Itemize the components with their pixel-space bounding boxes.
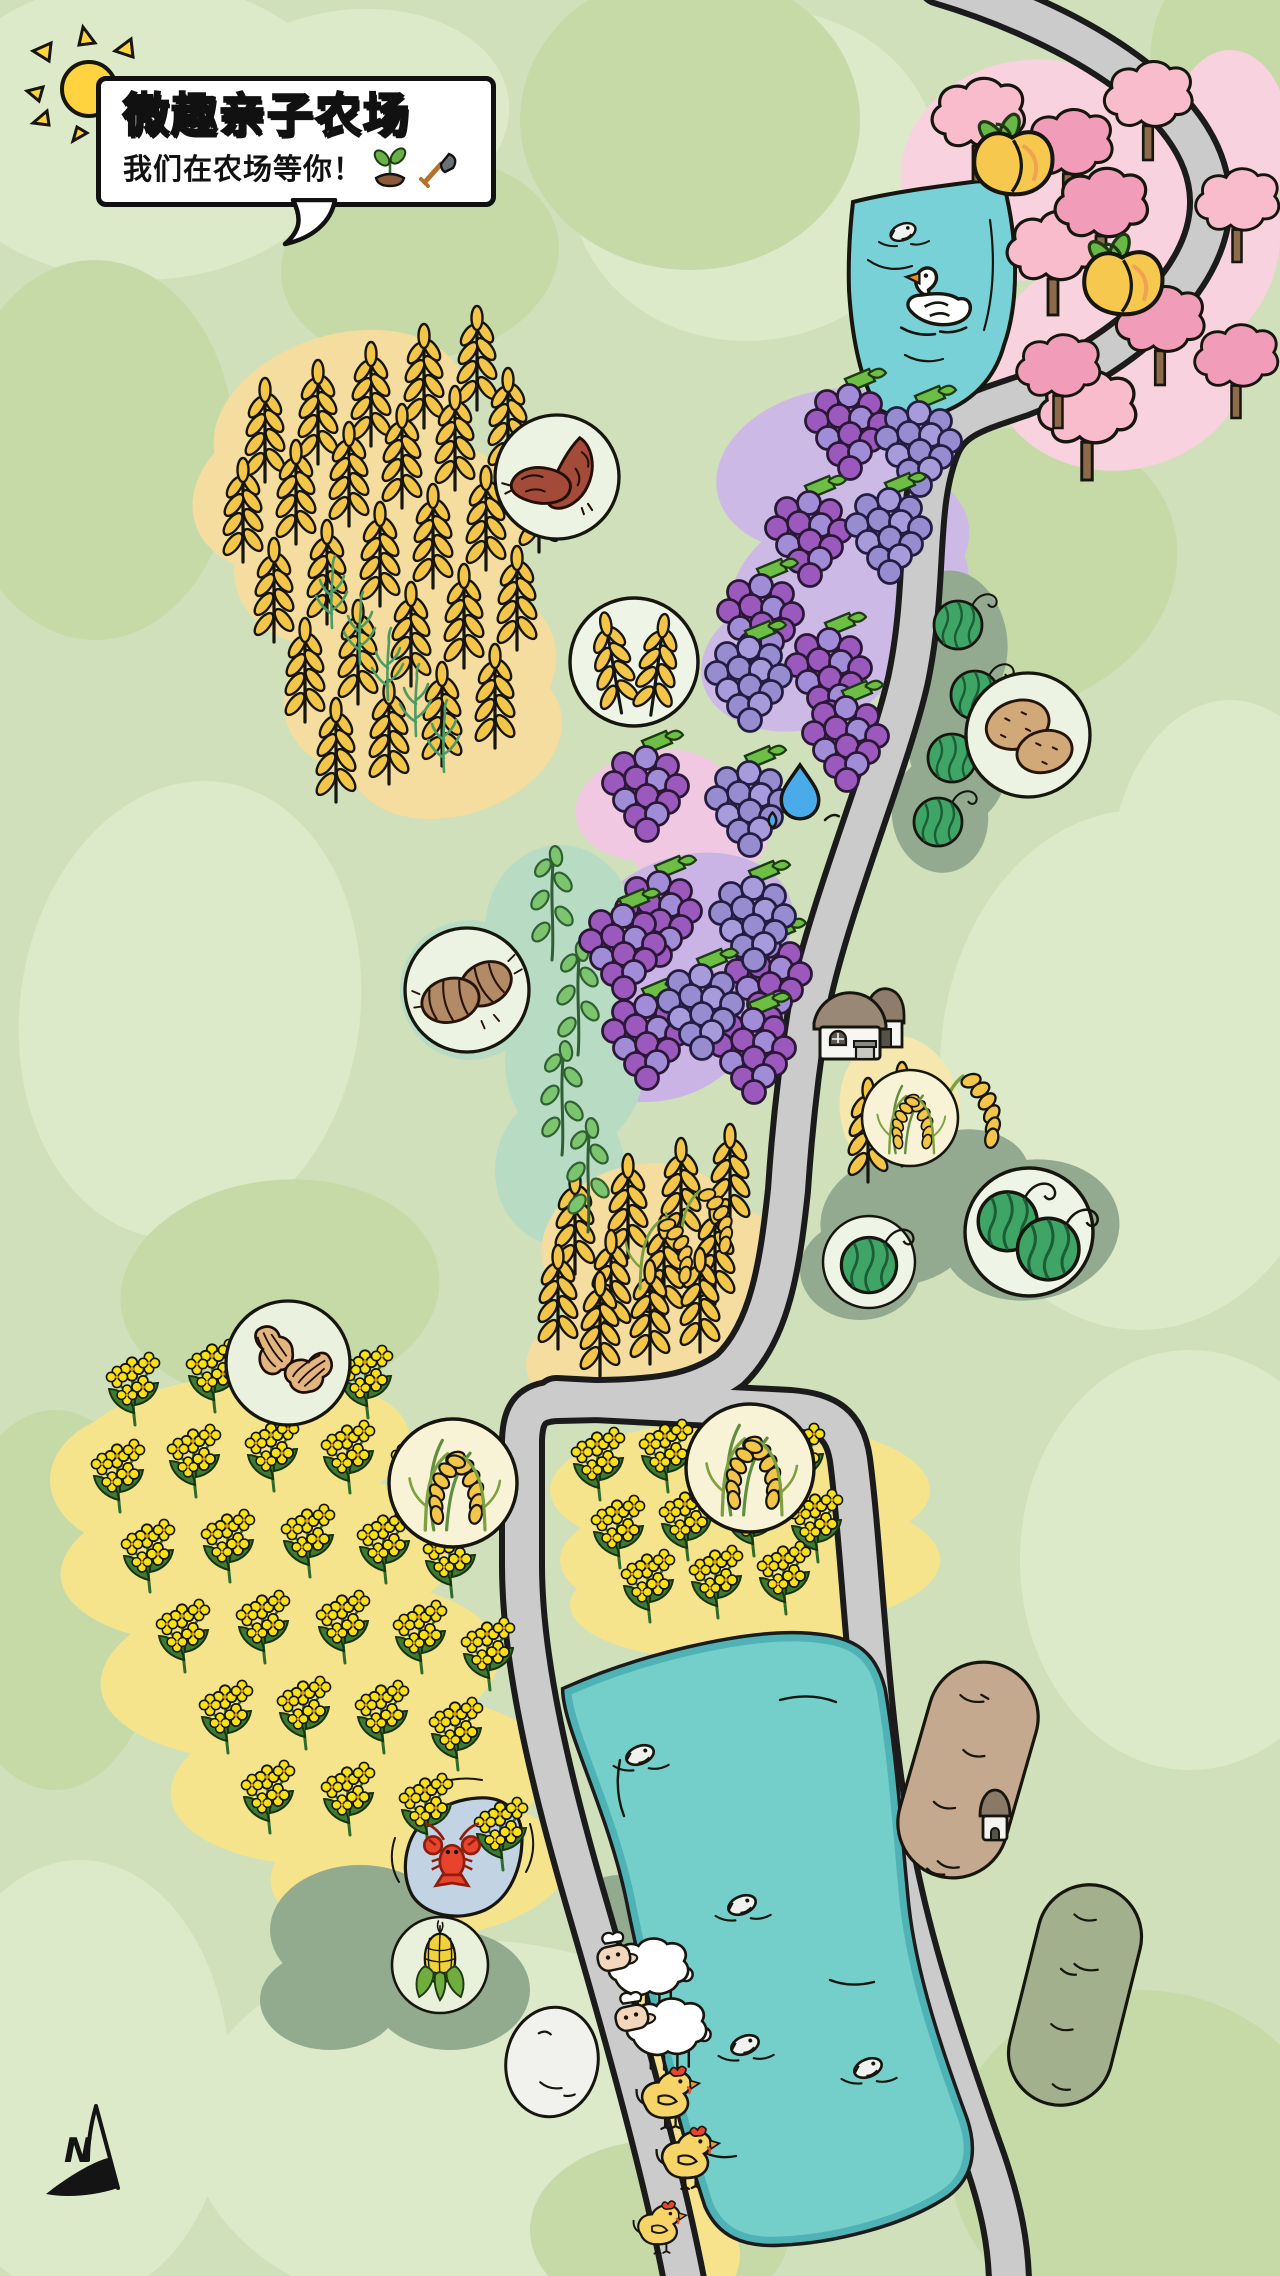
sprout-icon xyxy=(371,146,409,188)
badge-melon-small xyxy=(823,1216,915,1308)
badge-taro xyxy=(405,928,529,1052)
north-label: N xyxy=(64,2131,92,2171)
badge-potato xyxy=(966,673,1090,797)
badge-sweet-potato xyxy=(495,415,619,539)
farm-title: 微趣亲子农场 xyxy=(123,89,475,142)
farm-map-poster: N 微趣亲子农场 我们在农场等你！ xyxy=(0,0,1280,2276)
title-banner: 微趣亲子农场 我们在农场等你！ xyxy=(96,76,496,207)
badge-rice xyxy=(686,1404,814,1532)
badge-rice xyxy=(389,1419,517,1547)
hut-icon xyxy=(980,1790,1010,1840)
badge-corn xyxy=(392,1917,488,2013)
speech-bubble-tail xyxy=(281,198,353,248)
farm-subtitle: 我们在农场等你！ xyxy=(123,146,363,188)
badge-rice xyxy=(862,1070,958,1166)
shovel-icon xyxy=(417,146,461,188)
farm-map-illustration: N xyxy=(0,0,1280,2276)
badge-wheat xyxy=(570,598,698,726)
badge-peanut xyxy=(226,1301,350,1425)
